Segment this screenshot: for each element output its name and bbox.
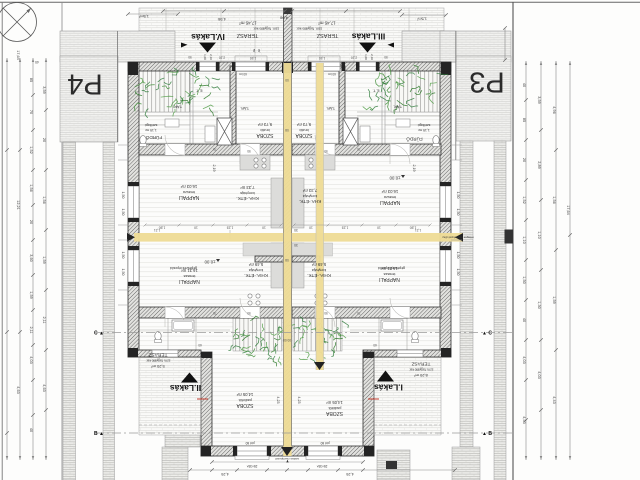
svg-text:TERASZ: TERASZ — [148, 352, 167, 358]
svg-text:4,43: 4,43 — [552, 396, 556, 403]
svg-text:1,50: 1,50 — [121, 252, 125, 259]
svg-text:14,05 m²: 14,05 m² — [236, 392, 253, 397]
svg-text:2,19: 2,19 — [212, 165, 216, 172]
svg-text:IV.Lakás: IV.Lakás — [191, 32, 225, 42]
svg-text:25˄35˄: 25˄35˄ — [316, 464, 327, 468]
svg-text:1,00: 1,00 — [364, 54, 368, 60]
svg-text:SZOBA: SZOBA — [325, 410, 343, 416]
svg-text:szm. fagyálló ker.: szm. fagyálló ker. — [145, 359, 170, 363]
svg-text:pírl 60: pírl 60 — [245, 441, 254, 445]
svg-text:1,00: 1,00 — [203, 54, 207, 60]
svg-text:2,10: 2,10 — [370, 54, 374, 60]
svg-text:1,50: 1,50 — [456, 209, 460, 216]
svg-text:konyhája: konyhája — [240, 191, 254, 195]
svg-text:1,19 m²: 1,19 m² — [417, 128, 429, 132]
svg-text:1,52: 1,52 — [522, 196, 526, 203]
svg-text:17,45 m²: 17,45 m² — [318, 21, 336, 26]
svg-text:30: 30 — [294, 243, 298, 247]
svg-text:75: 75 — [357, 311, 361, 315]
svg-text:25˄35˄: 25˄35˄ — [246, 464, 257, 468]
svg-text:1,50: 1,50 — [319, 56, 325, 60]
svg-text:7,33 m²: 7,33 m² — [302, 188, 317, 193]
svg-text:2,11: 2,11 — [42, 316, 46, 323]
svg-text:TERASZ: TERASZ — [411, 361, 430, 367]
svg-text:40: 40 — [522, 83, 526, 87]
svg-text:4,63: 4,63 — [42, 384, 46, 391]
svg-text:10: 10 — [194, 226, 198, 230]
svg-text:szm. fagyálló ker.: szm. fagyálló ker. — [408, 368, 433, 372]
svg-text:60 lm: 60 lm — [328, 72, 336, 76]
svg-text:75: 75 — [213, 311, 217, 315]
svg-text:NAPPALI: NAPPALI — [179, 278, 200, 284]
svg-text:75: 75 — [357, 147, 361, 151]
svg-text:00 08: 00 08 — [283, 338, 291, 342]
svg-text:▲ C: ▲ C — [482, 330, 492, 336]
svg-text:1,5m²: 1,5m² — [138, 14, 148, 18]
svg-text:konyhája: konyhája — [303, 194, 317, 198]
svg-text:NAPPALI: NAPPALI — [179, 194, 200, 200]
svg-text:1,59: 1,59 — [42, 256, 46, 263]
svg-text:1,19 m²: 1,19 m² — [144, 128, 156, 132]
svg-text:terasza: terasza — [184, 274, 196, 278]
svg-text:4,63: 4,63 — [16, 386, 20, 393]
svg-text:5,49 m²: 5,49 m² — [311, 262, 326, 267]
svg-text:2,10: 2,10 — [351, 56, 357, 60]
svg-text:E.T.: E.T. — [373, 88, 380, 93]
svg-text:60: 60 — [373, 343, 377, 347]
svg-text:1,52: 1,52 — [29, 146, 33, 153]
svg-text:1,33: 1,33 — [342, 226, 349, 230]
svg-text:30: 30 — [294, 228, 298, 232]
svg-text:konyhája: konyhája — [312, 268, 326, 272]
svg-text:20: 20 — [29, 220, 33, 224]
svg-text:4,25: 4,25 — [346, 472, 353, 476]
svg-text:2,10: 2,10 — [219, 56, 225, 60]
svg-text:bruttó: bruttó — [260, 128, 269, 132]
svg-text:4,25: 4,25 — [221, 472, 228, 476]
svg-text:KHA.-ÉTK.: KHA.-ÉTK. — [299, 199, 321, 205]
svg-text:réteges homlokzati dísz: réteges homlokzati dísz — [442, 236, 474, 240]
svg-text:1,50: 1,50 — [522, 276, 526, 283]
svg-text:▲ B: ▲ B — [482, 431, 492, 437]
svg-text:SZOBA: SZOBA — [256, 132, 274, 138]
svg-text:90: 90 — [324, 311, 328, 315]
svg-text:1,50: 1,50 — [121, 192, 125, 199]
svg-text:3,59: 3,59 — [42, 86, 46, 93]
svg-text:TÁR.: TÁR. — [173, 104, 182, 109]
svg-text:FÜRDŐ: FÜRDŐ — [145, 135, 162, 141]
svg-text:C ▲: C ▲ — [94, 330, 104, 336]
svg-text:00: 00 — [285, 78, 289, 82]
svg-text:08: 08 — [285, 258, 289, 262]
svg-text:1,50: 1,50 — [121, 269, 125, 276]
svg-text:gépészeti lépcsőd: gépészeti lépcsőd — [378, 266, 405, 270]
svg-text:4,03: 4,03 — [522, 356, 526, 363]
svg-text:2,89: 2,89 — [537, 161, 541, 168]
svg-text:1,56: 1,56 — [29, 184, 33, 191]
svg-text:3,59: 3,59 — [537, 96, 541, 103]
svg-text:1,50: 1,50 — [456, 252, 460, 259]
svg-text:terasza: terasza — [384, 272, 396, 276]
svg-text:TERASZ: TERASZ — [236, 32, 258, 38]
svg-text:KHIA.-ÉTK.: KHIA.-ÉTK. — [307, 273, 331, 279]
svg-text:9,73 m²: 9,73 m² — [257, 122, 272, 127]
svg-text:75: 75 — [213, 147, 217, 151]
svg-text:9,73 m²: 9,73 m² — [296, 122, 311, 127]
svg-text:10: 10 — [309, 226, 313, 230]
svg-text:90: 90 — [324, 149, 328, 153]
svg-text:8,20 m²: 8,20 m² — [414, 373, 428, 378]
svg-text:padlófűt.: padlófűt. — [238, 398, 252, 402]
svg-text:4,03: 4,03 — [537, 371, 541, 378]
svg-text:szélfogó: szélfogó — [145, 123, 158, 127]
svg-text:1,10: 1,10 — [537, 231, 541, 238]
svg-text:1,21: 1,21 — [154, 228, 160, 232]
svg-text:NAPPALI: NAPPALI — [380, 199, 401, 205]
svg-text:40: 40 — [522, 318, 526, 322]
svg-text:±0.00: ±0.00 — [389, 176, 401, 181]
svg-text:padlófűt.: padlófűt. — [328, 406, 342, 410]
svg-text:SZOBA: SZOBA — [295, 132, 313, 138]
svg-text:08: 08 — [285, 128, 289, 132]
svg-text:pírl 60: pírl 60 — [320, 441, 329, 445]
svg-text:4,53: 4,53 — [522, 416, 526, 423]
svg-text:16.03 m²: 16.03 m² — [180, 184, 197, 189]
svg-text:1,10: 1,10 — [522, 236, 526, 243]
svg-text:TÁR.: TÁR. — [393, 104, 402, 109]
svg-text:4,98: 4,98 — [279, 15, 288, 20]
svg-text:3,60: 3,60 — [29, 254, 33, 261]
svg-text:KHA.-ÉTK.: KHA.-ÉTK. — [236, 196, 258, 202]
svg-text:17,45 m²: 17,45 m² — [239, 21, 257, 26]
svg-text:90: 90 — [247, 311, 251, 315]
svg-text:1,21: 1,21 — [415, 228, 421, 232]
svg-text:konyhája: konyhája — [249, 268, 263, 272]
svg-text:1,5m²: 1,5m² — [416, 16, 426, 20]
svg-text:1,50: 1,50 — [456, 269, 460, 276]
svg-text:45˚: 45˚ — [257, 49, 262, 53]
svg-text:85: 85 — [522, 118, 526, 122]
svg-text:szm. fagyálló ker.: szm. fagyálló ker. — [253, 27, 279, 31]
svg-text:10: 10 — [377, 226, 381, 230]
svg-text:1,50: 1,50 — [250, 56, 256, 60]
svg-text:12,21: 12,21 — [16, 200, 20, 210]
svg-text:2,11: 2,11 — [29, 326, 33, 333]
svg-text:70: 70 — [29, 110, 33, 114]
svg-text:1,59: 1,59 — [552, 296, 556, 303]
svg-text:1,30: 1,30 — [537, 301, 541, 308]
svg-text:E.T.: E.T. — [196, 88, 203, 93]
svg-text:TÁR.: TÁR. — [240, 106, 249, 111]
svg-text:KHIA.-ÉTK.: KHIA.-ÉTK. — [244, 273, 268, 279]
svg-text:40: 40 — [29, 428, 33, 432]
svg-text:20: 20 — [522, 158, 526, 162]
svg-text:FÜRDŐ: FÜRDŐ — [406, 137, 423, 143]
svg-text:TERASZ: TERASZ — [316, 32, 338, 38]
svg-text:90: 90 — [384, 55, 388, 59]
svg-text:2,10: 2,10 — [209, 54, 213, 60]
svg-text:terasza: terasza — [183, 190, 195, 194]
svg-text:1,50: 1,50 — [121, 209, 125, 216]
svg-text:I.Lakás: I.Lakás — [374, 382, 403, 392]
svg-text:1,56: 1,56 — [552, 196, 556, 203]
svg-text:B ▲: B ▲ — [94, 431, 104, 437]
svg-text:II.Lakás: II.Lakás — [170, 383, 201, 393]
svg-text:5,49 m²: 5,49 m² — [248, 262, 263, 267]
svg-text:±0.00: ±0.00 — [204, 260, 216, 265]
svg-text:bruttó: bruttó — [299, 128, 308, 132]
svg-text:90: 90 — [188, 55, 192, 59]
svg-text:1,33: 1,33 — [227, 226, 234, 230]
svg-text:szélfogó: szélfogó — [418, 123, 431, 127]
svg-text:1,50: 1,50 — [456, 192, 460, 199]
svg-text:85: 85 — [29, 78, 33, 82]
svg-text:17,64: 17,64 — [566, 205, 570, 215]
svg-text:20: 20 — [42, 138, 46, 142]
svg-text:40: 40 — [35, 60, 39, 64]
svg-text:2,19: 2,19 — [412, 165, 416, 172]
svg-text:4,23: 4,23 — [297, 397, 301, 404]
svg-text:14,05 m²: 14,05 m² — [326, 400, 343, 405]
svg-text:SZOBA: SZOBA — [236, 402, 254, 408]
svg-text:60: 60 — [198, 343, 202, 347]
svg-text:5,20 m²: 5,20 m² — [151, 364, 165, 369]
svg-text:4,96: 4,96 — [552, 106, 556, 113]
svg-text:P4: P4 — [67, 67, 102, 99]
svg-text:17,64: 17,64 — [16, 50, 20, 60]
svg-text:terasza: terasza — [384, 195, 396, 199]
svg-text:4,23: 4,23 — [276, 397, 280, 404]
svg-text:NAPPALI: NAPPALI — [379, 276, 400, 282]
svg-text:szm. fagyálló ker.: szm. fagyálló ker. — [296, 27, 322, 31]
svg-text:III.Lakás: III.Lakás — [351, 32, 385, 42]
svg-text:10: 10 — [262, 226, 266, 230]
svg-text:4,98: 4,98 — [217, 17, 226, 22]
svg-text:P3: P3 — [469, 65, 504, 97]
svg-text:7,33 m²: 7,33 m² — [240, 185, 255, 190]
svg-text:16.03 m²: 16.03 m² — [381, 189, 398, 194]
svg-text:TÁR.: TÁR. — [326, 106, 335, 111]
svg-text:4,03: 4,03 — [29, 356, 33, 363]
svg-text:55˚: 55˚ — [252, 49, 257, 53]
svg-text:60 lm: 60 lm — [239, 72, 247, 76]
svg-text:1,59: 1,59 — [29, 291, 33, 298]
svg-text:széles csempesor: széles csempesor — [275, 457, 299, 461]
svg-text:gépészeti lépcsőd: gépészeti lépcsőd — [170, 266, 197, 270]
svg-text:1,56: 1,56 — [42, 196, 46, 203]
svg-text:90: 90 — [247, 149, 251, 153]
